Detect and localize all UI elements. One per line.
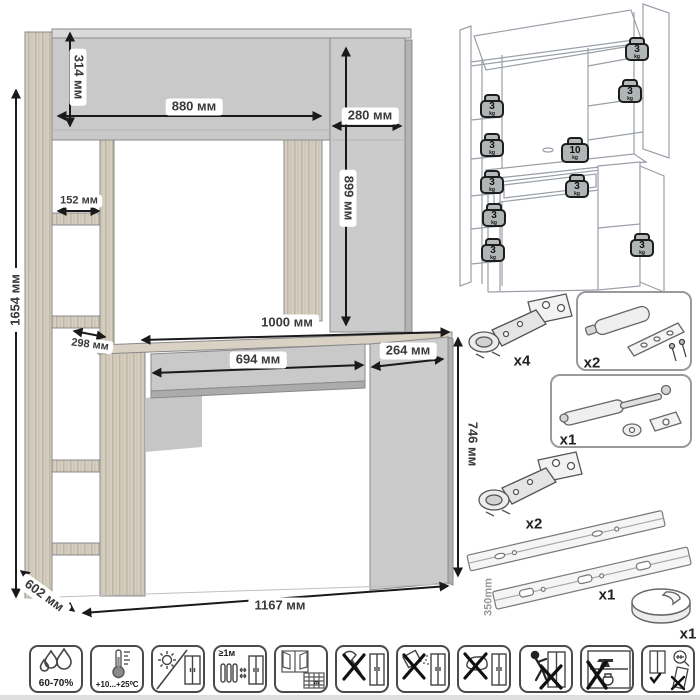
humidity-range: 60-70% — [31, 679, 81, 689]
axe-cabinet-glyph — [339, 648, 389, 692]
slide-length-label: 350mm — [484, 578, 495, 616]
dim-hutch-height: 314 мм — [70, 49, 87, 106]
gas-lift-box: x1 — [550, 374, 692, 448]
no-abrasives-icon — [396, 645, 450, 693]
secure-to-wall-icon — [641, 645, 695, 693]
furniture-assembly-sheet: 1654 мм 314 мм 880 мм 280 мм 899 мм 152 … — [0, 0, 700, 700]
dim-total-width: 1167 мм — [248, 598, 311, 615]
temperature-range: +10...+25⁰C — [92, 681, 142, 689]
heat-distance-label: ≥1м — [219, 649, 236, 658]
dim-desktop-width: 1000 мм — [255, 315, 319, 332]
load-weight: 3kg — [480, 133, 504, 157]
dim-right-cabinet-width: 280 мм — [342, 108, 399, 125]
no-dragging-icon — [519, 645, 573, 693]
gas-lift-qty: x1 — [560, 433, 577, 448]
ventilation-icon: 21 — [274, 645, 328, 693]
temperature-icon: +10...+25⁰C — [90, 645, 144, 693]
load-weight: 3kg — [481, 238, 505, 262]
no-direct-sunlight-icon — [151, 645, 205, 693]
load-weight: 3kg — [480, 170, 504, 194]
hinge-qty: x4 — [514, 354, 531, 369]
care-icons-row: 60-70% +10...+25⁰C — [29, 645, 695, 693]
thermometer-glyph — [94, 648, 144, 680]
load-weight: 3kg — [480, 94, 504, 118]
humidity-icon: 60-70% — [29, 645, 83, 693]
load-weight-desktop: 10kg — [561, 137, 589, 163]
hinge-icon — [462, 290, 572, 362]
cable-grommet-icon — [628, 584, 694, 628]
person-pushing-glyph — [523, 648, 573, 692]
sun-cabinet-glyph — [155, 648, 205, 692]
heat-source-distance-icon: ≥1м — [213, 645, 267, 693]
dim-desk-height: 746 мм — [464, 416, 481, 473]
dim-shelf-width: 152 мм — [56, 195, 102, 208]
wet-sponge-glyph — [461, 648, 511, 692]
overloaded-shelf-glyph — [584, 648, 634, 692]
load-weight: 3kg — [482, 203, 506, 227]
slides-qty: x1 — [599, 588, 616, 603]
load-weight: 3kg — [618, 79, 642, 103]
damper-kit-box: x2 — [576, 291, 692, 371]
no-wet-cleaning-icon — [457, 645, 511, 693]
dim-total-height: 1654 мм — [8, 268, 25, 332]
dim-hutch-width: 880 мм — [166, 99, 223, 116]
no-overloading-icon — [580, 645, 634, 693]
hinge2-qty: x2 — [526, 517, 543, 532]
wall-anchoring-glyph — [645, 648, 695, 692]
load-weight: 3kg — [630, 233, 654, 257]
load-weight: 3kg — [565, 174, 589, 198]
load-weight: 3kg — [625, 37, 649, 61]
svg-text:21: 21 — [314, 682, 318, 686]
footer-strip — [0, 695, 700, 700]
water-drops-glyph — [33, 648, 83, 678]
abrasive-powder-glyph — [400, 648, 450, 692]
dim-right-cabinet-height: 899 мм — [340, 170, 357, 227]
grommet-qty: x1 — [680, 627, 697, 642]
no-sharp-tools-icon — [335, 645, 389, 693]
dim-pedestal-width: 264 мм — [380, 343, 437, 360]
window-calendar-glyph: 21 — [278, 648, 328, 692]
dim-drawer-width: 694 мм — [230, 352, 287, 369]
damper-qty: x2 — [584, 356, 601, 371]
